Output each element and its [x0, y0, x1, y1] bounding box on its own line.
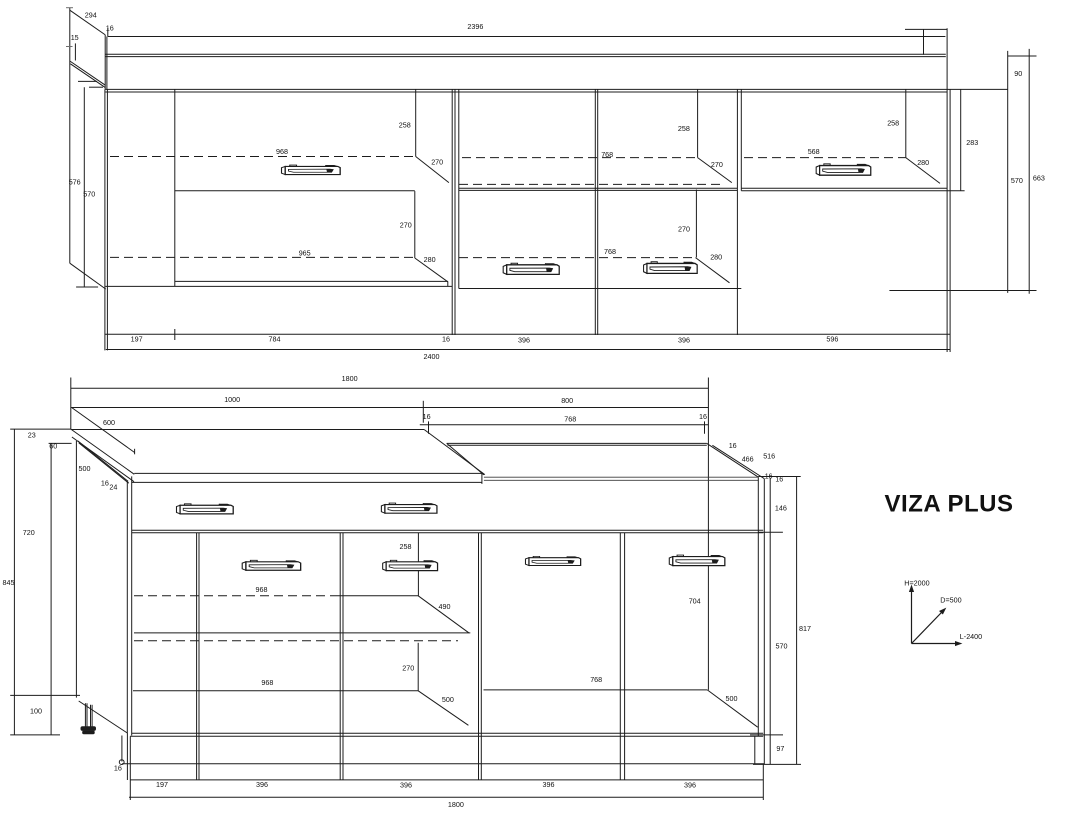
svg-text:16: 16 — [114, 764, 122, 773]
svg-text:396: 396 — [256, 780, 268, 789]
svg-text:570: 570 — [776, 641, 788, 650]
svg-text:197: 197 — [131, 335, 143, 344]
svg-text:280: 280 — [917, 158, 929, 167]
svg-text:1800: 1800 — [448, 800, 464, 809]
svg-text:1800: 1800 — [342, 374, 358, 383]
svg-text:817: 817 — [799, 624, 811, 633]
svg-text:90: 90 — [1014, 69, 1022, 78]
svg-text:570: 570 — [1011, 176, 1023, 185]
svg-text:16: 16 — [699, 412, 707, 421]
svg-text:663: 663 — [1033, 174, 1045, 183]
svg-text:2396: 2396 — [467, 22, 483, 31]
svg-text:146: 146 — [775, 503, 787, 512]
svg-text:60: 60 — [49, 442, 57, 451]
svg-text:16: 16 — [775, 476, 783, 483]
svg-text:258: 258 — [399, 120, 411, 129]
svg-text:VIZA PLUS: VIZA PLUS — [885, 491, 1014, 518]
svg-text:516: 516 — [763, 451, 775, 460]
svg-text:466: 466 — [742, 455, 754, 464]
svg-text:1000: 1000 — [224, 395, 240, 404]
svg-text:768: 768 — [601, 150, 613, 159]
svg-text:280: 280 — [710, 253, 722, 262]
svg-text:500: 500 — [726, 694, 738, 703]
svg-text:283: 283 — [966, 138, 978, 147]
svg-text:396: 396 — [400, 781, 412, 790]
svg-text:768: 768 — [564, 415, 576, 424]
svg-text:24: 24 — [109, 483, 117, 492]
svg-text:968: 968 — [256, 585, 268, 594]
svg-text:570: 570 — [83, 190, 95, 199]
svg-text:16: 16 — [729, 441, 737, 450]
svg-text:720: 720 — [23, 528, 35, 537]
svg-text:490: 490 — [439, 602, 451, 611]
svg-text:L-2400: L-2400 — [960, 632, 982, 641]
svg-text:784: 784 — [269, 335, 281, 344]
svg-text:768: 768 — [590, 675, 602, 684]
svg-text:H=2000: H=2000 — [904, 579, 929, 588]
svg-text:500: 500 — [79, 464, 91, 473]
svg-text:258: 258 — [678, 124, 690, 133]
svg-text:968: 968 — [261, 678, 273, 687]
svg-text:500: 500 — [442, 695, 454, 704]
svg-text:2400: 2400 — [424, 352, 440, 361]
svg-text:D=500: D=500 — [940, 596, 961, 605]
svg-text:396: 396 — [684, 781, 696, 790]
svg-text:396: 396 — [518, 336, 530, 345]
svg-text:576: 576 — [69, 178, 81, 187]
svg-text:258: 258 — [400, 542, 412, 551]
svg-text:100: 100 — [30, 707, 42, 716]
svg-text:968: 968 — [276, 147, 288, 156]
svg-text:845: 845 — [3, 578, 15, 587]
svg-text:294: 294 — [85, 11, 97, 20]
svg-text:800: 800 — [561, 396, 573, 405]
svg-text:965: 965 — [299, 249, 311, 258]
svg-text:258: 258 — [887, 118, 899, 127]
svg-text:270: 270 — [402, 664, 414, 673]
svg-text:270: 270 — [400, 221, 412, 230]
svg-text:768: 768 — [604, 247, 616, 256]
svg-text:596: 596 — [826, 335, 838, 344]
svg-text:197: 197 — [156, 780, 168, 789]
svg-text:600: 600 — [103, 418, 115, 427]
svg-text:568: 568 — [808, 147, 820, 156]
svg-text:396: 396 — [543, 780, 555, 789]
svg-text:270: 270 — [678, 224, 690, 233]
svg-text:270: 270 — [431, 157, 443, 166]
svg-text:16: 16 — [765, 474, 773, 481]
svg-text:704: 704 — [689, 597, 701, 606]
svg-text:280: 280 — [424, 255, 436, 264]
svg-text:23: 23 — [28, 431, 36, 440]
svg-text:16: 16 — [106, 24, 114, 33]
svg-text:16: 16 — [423, 412, 431, 421]
svg-text:16: 16 — [442, 335, 450, 344]
svg-text:97: 97 — [776, 744, 784, 753]
svg-text:270: 270 — [711, 160, 723, 169]
svg-text:396: 396 — [678, 336, 690, 345]
svg-text:16: 16 — [101, 479, 109, 488]
svg-text:15: 15 — [71, 33, 79, 42]
